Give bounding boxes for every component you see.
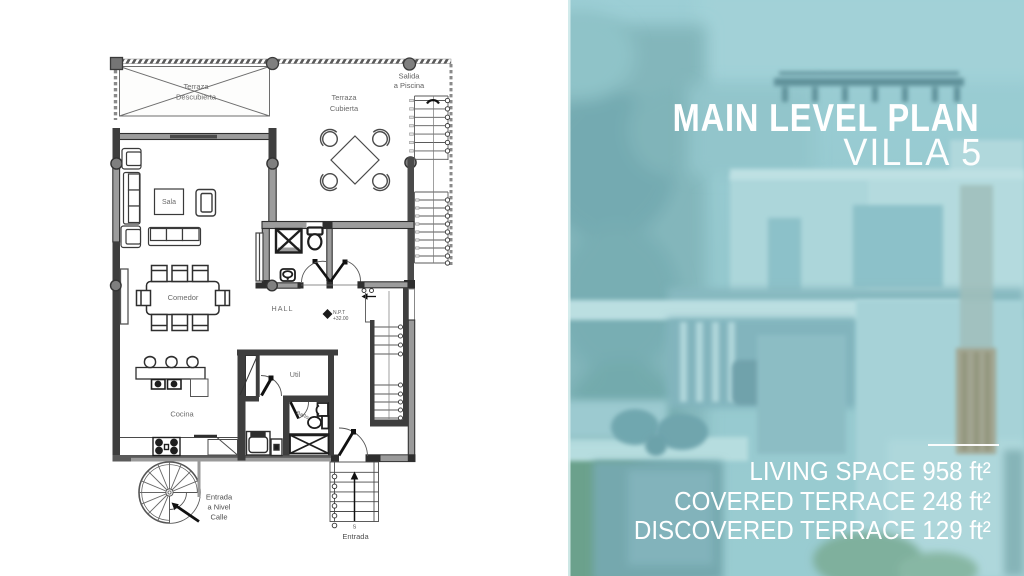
svg-text:a Piscina: a Piscina (394, 81, 425, 90)
svg-text:Entrada: Entrada (342, 532, 369, 541)
svg-text:Salida: Salida (399, 72, 421, 81)
svg-text:Baño: Baño (295, 410, 309, 421)
svg-text:Cocina: Cocina (170, 410, 194, 419)
svg-text:Terraza: Terraza (183, 82, 209, 91)
svg-text:Terraza: Terraza (331, 93, 357, 102)
svg-text:Descubierta: Descubierta (176, 93, 217, 102)
svg-text:a Nivel: a Nivel (208, 503, 231, 512)
svg-text:Entrada: Entrada (206, 493, 233, 502)
svg-text:HALL: HALL (272, 304, 294, 313)
svg-text:Calle: Calle (210, 513, 227, 522)
svg-text:Sala: Sala (162, 199, 176, 206)
svg-text:Util: Util (290, 370, 301, 379)
svg-text:S: S (353, 525, 357, 531)
svg-text:Comedor: Comedor (168, 293, 199, 302)
svg-text:Cubierta: Cubierta (330, 104, 359, 113)
svg-text:+32.00: +32.00 (333, 316, 349, 322)
